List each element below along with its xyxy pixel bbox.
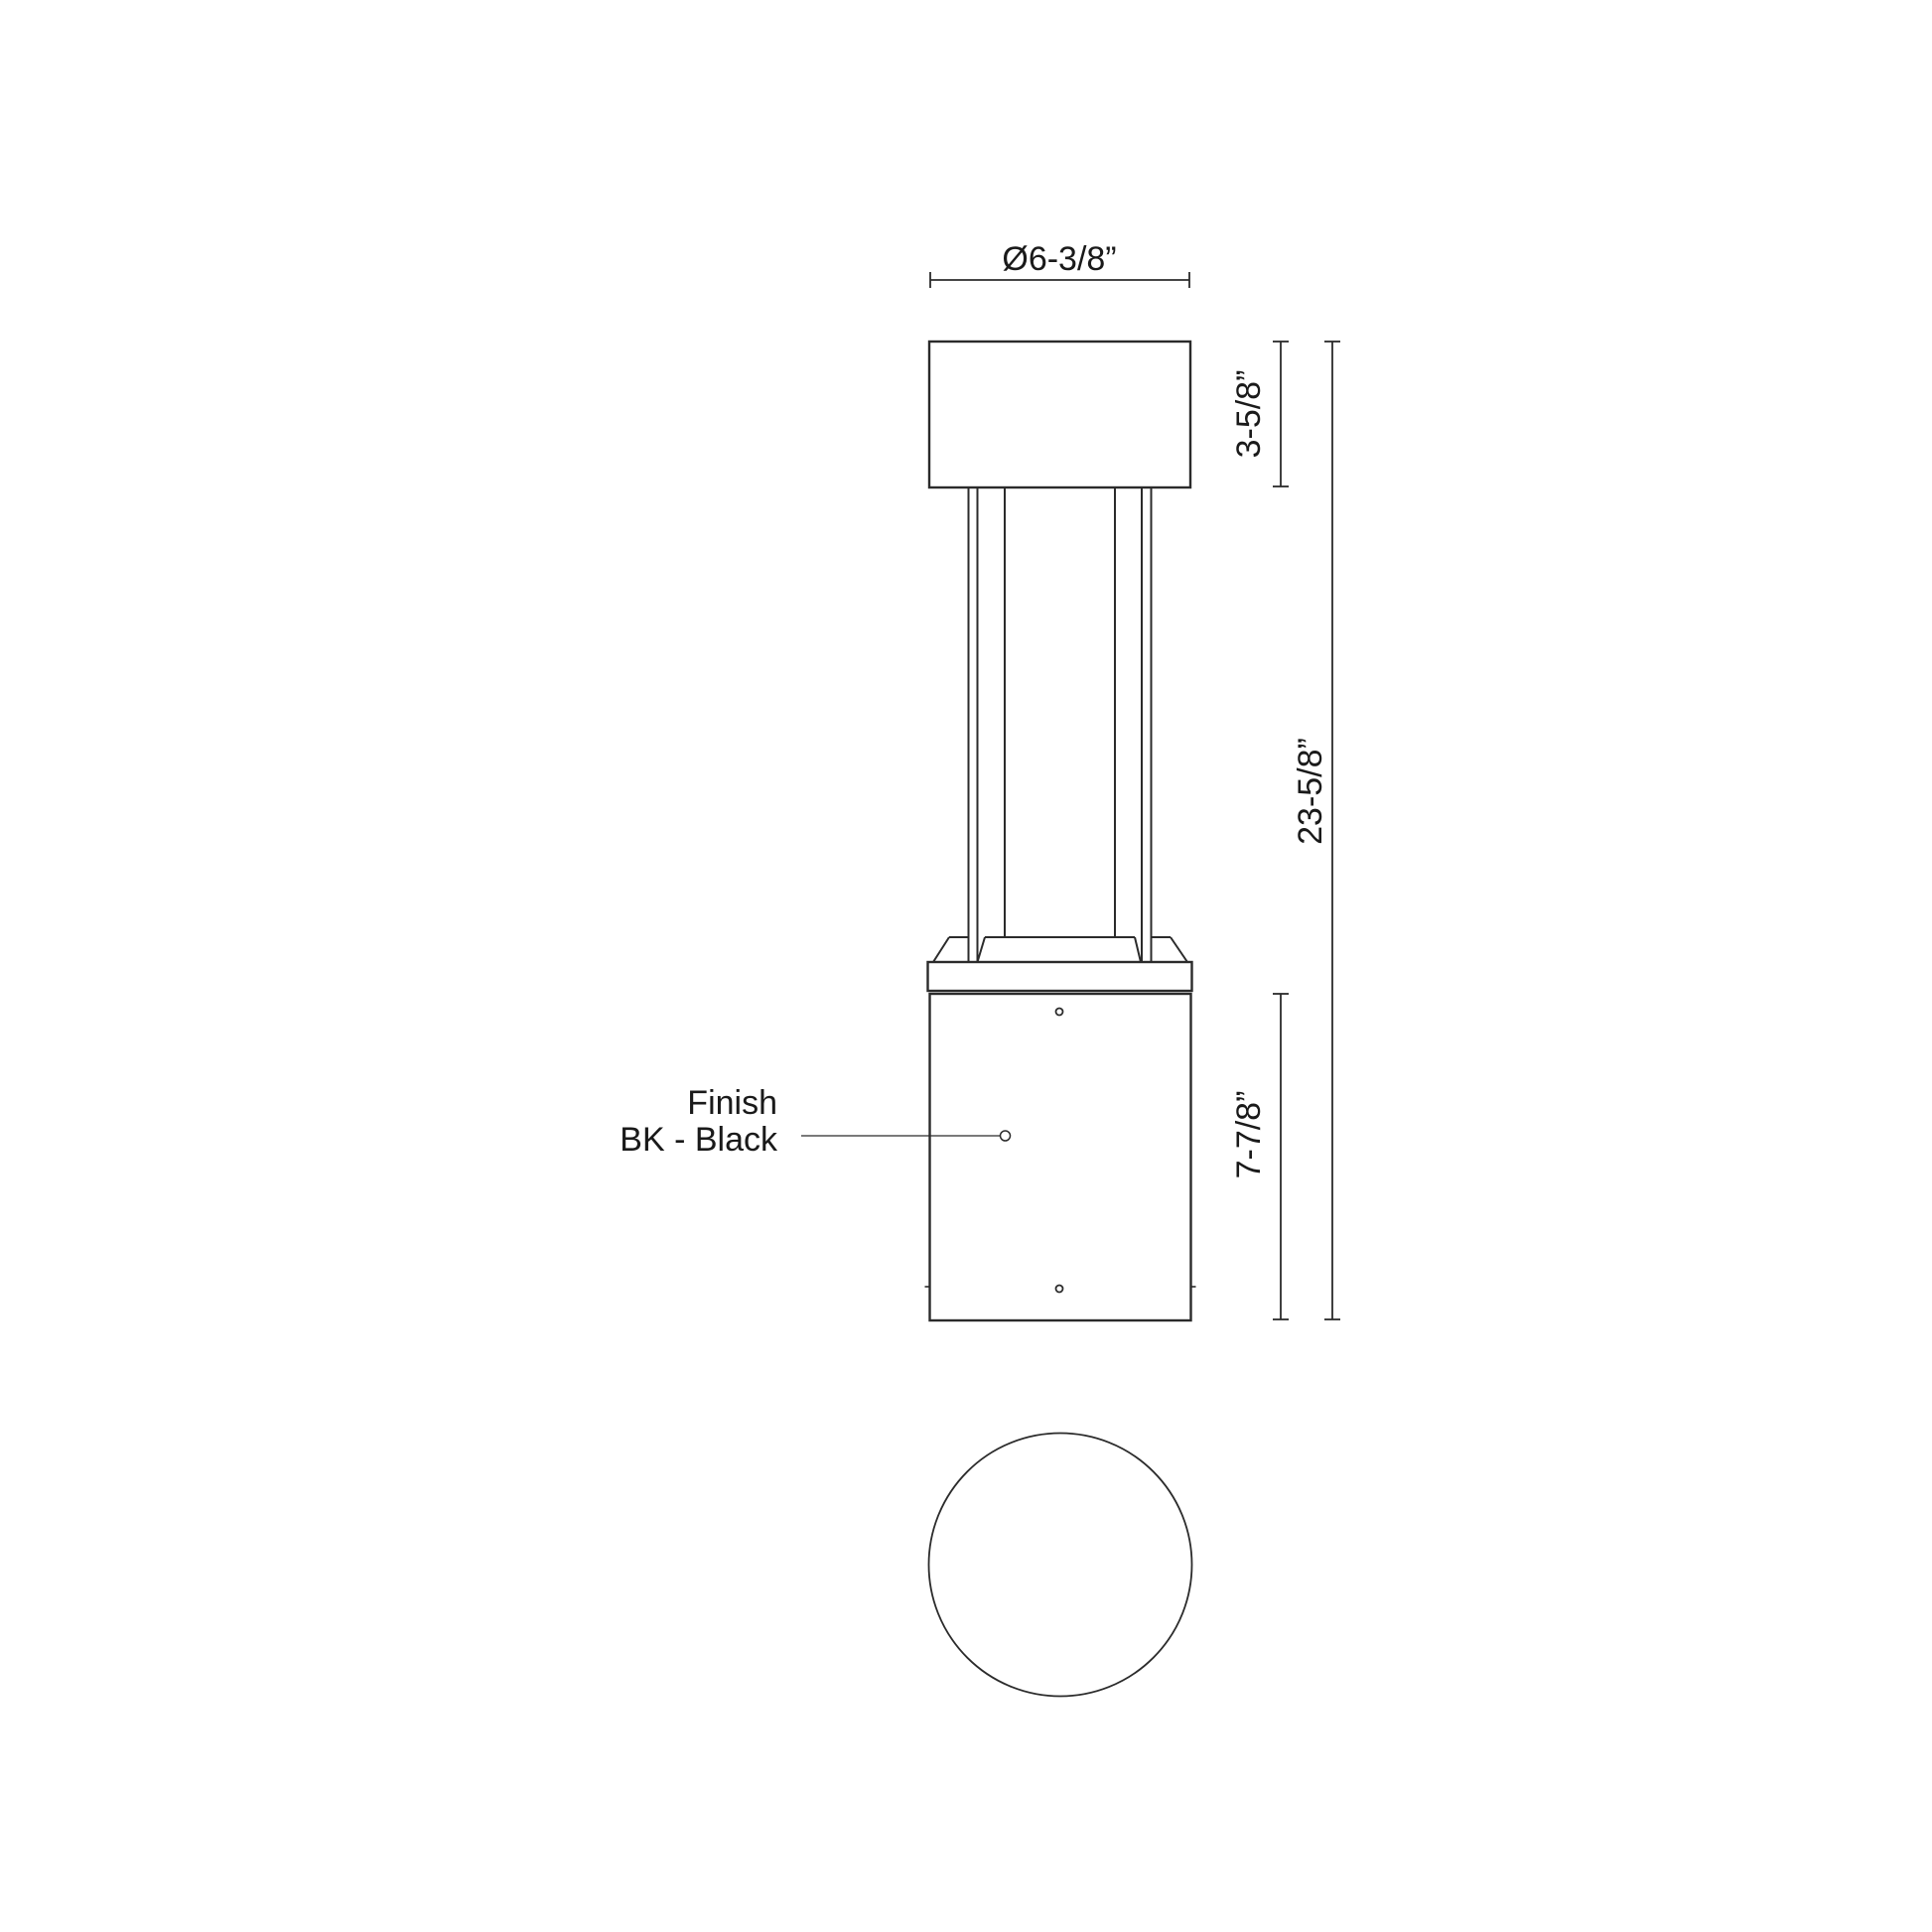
cap-outline [929, 342, 1190, 487]
plate-slope-inner-left [978, 937, 986, 962]
finish-label-title: Finish [687, 1086, 777, 1120]
base-height-dimension-label: 7-7/8” [1232, 1091, 1266, 1179]
plan-view [929, 1434, 1192, 1697]
base-height-dimension [1273, 994, 1289, 1319]
cap-height-dimension [1273, 342, 1289, 486]
front-elevation-view [925, 342, 1196, 1320]
transition-plate [933, 937, 1187, 962]
post-lines [969, 487, 1152, 962]
technical-drawing-page: Ø6-3/8” 3-5/8” 23-5/8” 7-7/8” Finish BK … [0, 0, 1932, 1932]
collar-outline [928, 962, 1192, 991]
cap-height-dimension-label: 3-5/8” [1232, 370, 1266, 459]
diameter-dimension-label: Ø6-3/8” [1002, 242, 1116, 276]
finish-label-value: BK - Black [620, 1123, 777, 1157]
finish-leader-dot [1001, 1131, 1011, 1141]
plan-view-circle [929, 1434, 1192, 1697]
drawing-linework [0, 0, 1932, 1932]
plate-slope-inner-right [1135, 937, 1141, 962]
base-screw-bottom [1056, 1286, 1063, 1293]
plate-slope-outer-left [933, 937, 949, 962]
base-outline [930, 994, 1191, 1320]
overall-height-dimension-label: 23-5/8” [1294, 738, 1327, 845]
base-screw-top [1056, 1009, 1063, 1016]
finish-leader [801, 1131, 1011, 1141]
plate-slope-outer-right [1171, 937, 1187, 962]
